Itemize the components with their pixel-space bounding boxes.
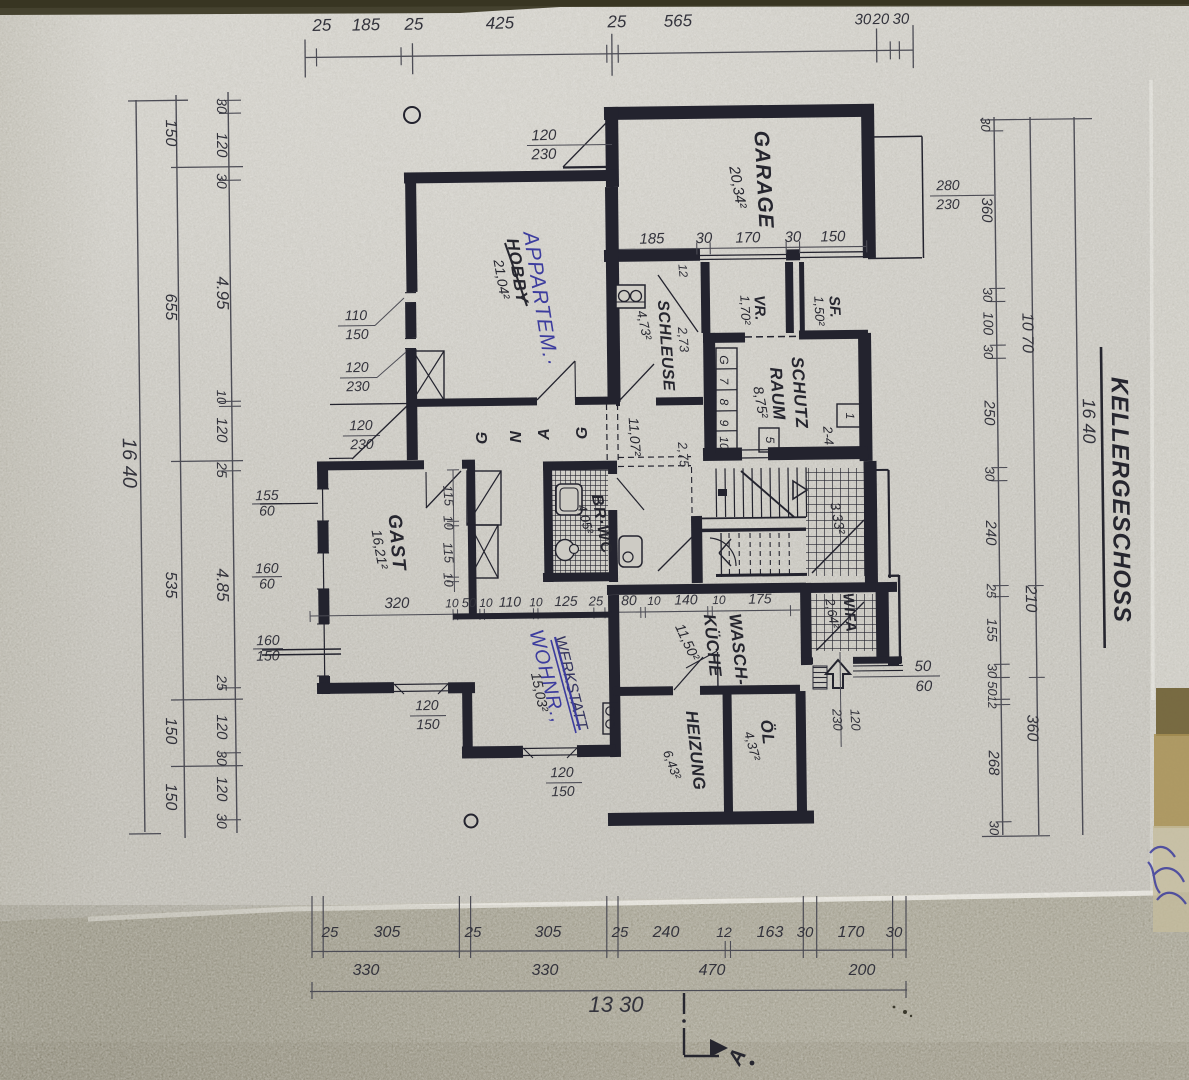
svg-text:163: 163 <box>757 924 784 941</box>
svg-text:KELLERGESCHOSS: KELLERGESCHOSS <box>1105 377 1135 623</box>
svg-text:120: 120 <box>213 714 230 740</box>
svg-text:150: 150 <box>551 783 575 799</box>
svg-text:120: 120 <box>213 417 230 443</box>
svg-text:30: 30 <box>784 229 802 246</box>
svg-text:50: 50 <box>462 595 478 610</box>
svg-text:230: 230 <box>935 196 960 212</box>
svg-text:360: 360 <box>1023 714 1040 741</box>
svg-text:100: 100 <box>980 312 996 336</box>
svg-text:30: 30 <box>892 11 910 28</box>
svg-text:320: 320 <box>384 595 410 613</box>
svg-text:150: 150 <box>162 717 179 744</box>
svg-text:30: 30 <box>886 924 903 941</box>
svg-text:150: 150 <box>820 228 846 246</box>
svg-text:230: 230 <box>829 708 845 732</box>
svg-text:16 40: 16 40 <box>1079 398 1100 443</box>
svg-text:150: 150 <box>162 783 179 810</box>
svg-text:170: 170 <box>838 924 865 941</box>
svg-text:25: 25 <box>588 593 605 608</box>
svg-text:30: 30 <box>214 750 230 766</box>
svg-text:360: 360 <box>978 197 995 223</box>
svg-text:240: 240 <box>982 519 999 546</box>
svg-text:115: 115 <box>440 542 457 565</box>
svg-text:2,73: 2,73 <box>675 325 692 353</box>
svg-text:115: 115 <box>440 485 457 508</box>
svg-text:110: 110 <box>499 593 522 609</box>
svg-text:30: 30 <box>695 230 713 247</box>
svg-text:240: 240 <box>652 924 680 941</box>
svg-text:305: 305 <box>374 924 401 941</box>
svg-text:160: 160 <box>255 560 279 576</box>
svg-text:30: 30 <box>985 664 1000 679</box>
svg-text:150: 150 <box>416 716 440 732</box>
svg-text:25: 25 <box>464 924 482 941</box>
svg-text:N: N <box>508 431 525 443</box>
svg-text:210: 210 <box>1022 584 1039 612</box>
svg-text:10: 10 <box>717 436 731 450</box>
svg-text:170: 170 <box>735 229 761 247</box>
svg-text:120: 120 <box>349 417 373 433</box>
svg-text:5: 5 <box>763 436 777 443</box>
svg-text:150: 150 <box>162 119 179 146</box>
svg-text:25: 25 <box>214 674 230 691</box>
svg-text:12: 12 <box>675 263 690 278</box>
svg-text:30: 30 <box>980 288 995 303</box>
svg-text:9: 9 <box>717 419 731 426</box>
svg-text:125: 125 <box>554 593 578 609</box>
svg-text:G: G <box>474 432 491 444</box>
svg-text:470: 470 <box>699 962 726 979</box>
svg-text:1,70²: 1,70² <box>737 295 754 326</box>
svg-text:2-4: 2-4 <box>820 425 837 446</box>
svg-text:2,75: 2,75 <box>675 440 692 468</box>
svg-text:12: 12 <box>716 924 732 940</box>
svg-text:160: 160 <box>256 632 280 648</box>
svg-text:655: 655 <box>162 293 179 320</box>
svg-text:30: 30 <box>978 117 993 132</box>
svg-text:1: 1 <box>843 412 857 419</box>
svg-text:G: G <box>574 427 591 439</box>
svg-text:185: 185 <box>352 15 381 35</box>
svg-text:120: 120 <box>213 132 230 158</box>
svg-text:268: 268 <box>985 749 1002 776</box>
svg-text:10: 10 <box>440 572 456 588</box>
svg-text:60: 60 <box>915 678 933 695</box>
svg-text:10: 10 <box>479 596 493 610</box>
svg-text:230: 230 <box>345 378 370 394</box>
svg-text:230: 230 <box>530 146 557 164</box>
svg-text:4.95: 4.95 <box>213 276 232 310</box>
svg-text:25: 25 <box>311 16 332 35</box>
svg-text:120: 120 <box>345 359 369 375</box>
svg-text:8: 8 <box>717 398 731 405</box>
svg-text:30: 30 <box>854 11 872 28</box>
svg-text:1,50²: 1,50² <box>811 296 828 327</box>
svg-text:25: 25 <box>606 12 627 31</box>
svg-text:30: 30 <box>987 821 1002 836</box>
svg-text:10: 10 <box>440 515 456 531</box>
svg-text:305: 305 <box>535 924 562 941</box>
svg-text:12: 12 <box>985 695 999 709</box>
svg-text:16 40: 16 40 <box>118 438 141 488</box>
svg-text:13 30: 13 30 <box>588 992 644 1017</box>
svg-text:60: 60 <box>259 502 275 518</box>
svg-text:60: 60 <box>259 575 275 591</box>
svg-text:330: 330 <box>353 962 380 979</box>
svg-text:50: 50 <box>914 658 932 675</box>
svg-text:150: 150 <box>345 326 369 342</box>
svg-text:25: 25 <box>984 583 999 599</box>
svg-text:20: 20 <box>871 11 890 28</box>
svg-text:120: 120 <box>550 764 574 780</box>
svg-text:120: 120 <box>415 697 439 713</box>
svg-text:30: 30 <box>214 173 230 189</box>
svg-text:10: 10 <box>214 390 229 405</box>
svg-text:A: A <box>536 428 553 441</box>
svg-text:155: 155 <box>984 618 1000 642</box>
svg-text:110: 110 <box>345 307 368 323</box>
svg-text:4.85: 4.85 <box>213 568 232 602</box>
svg-text:WIFA: WIFA <box>839 592 859 633</box>
svg-text:425: 425 <box>486 13 515 33</box>
svg-text:30: 30 <box>214 98 230 114</box>
svg-text:10: 10 <box>647 594 661 608</box>
svg-text:120: 120 <box>847 709 863 732</box>
svg-text:10: 10 <box>445 596 459 610</box>
svg-text:565: 565 <box>664 11 693 31</box>
svg-text:155: 155 <box>255 487 279 503</box>
svg-text:200: 200 <box>848 962 876 979</box>
svg-text:535: 535 <box>162 571 179 598</box>
svg-text:25: 25 <box>403 14 424 33</box>
svg-text:30: 30 <box>982 467 997 482</box>
svg-text:11,07²: 11,07² <box>626 417 645 458</box>
svg-text:30: 30 <box>797 924 814 941</box>
svg-text:185: 185 <box>639 230 665 248</box>
svg-text:25: 25 <box>611 924 629 941</box>
svg-text:10 70: 10 70 <box>1018 313 1035 353</box>
svg-text:25: 25 <box>214 461 230 478</box>
svg-text:280: 280 <box>935 177 960 193</box>
svg-text:120: 120 <box>531 127 557 145</box>
svg-text:330: 330 <box>532 962 559 979</box>
svg-text:10: 10 <box>712 593 726 607</box>
svg-text:250: 250 <box>980 399 997 426</box>
svg-text:30: 30 <box>214 813 230 829</box>
svg-text:10: 10 <box>529 595 543 609</box>
svg-text:30: 30 <box>981 345 996 360</box>
svg-text:120: 120 <box>213 776 230 802</box>
svg-text:G: G <box>717 355 731 365</box>
svg-text:25: 25 <box>321 924 339 941</box>
